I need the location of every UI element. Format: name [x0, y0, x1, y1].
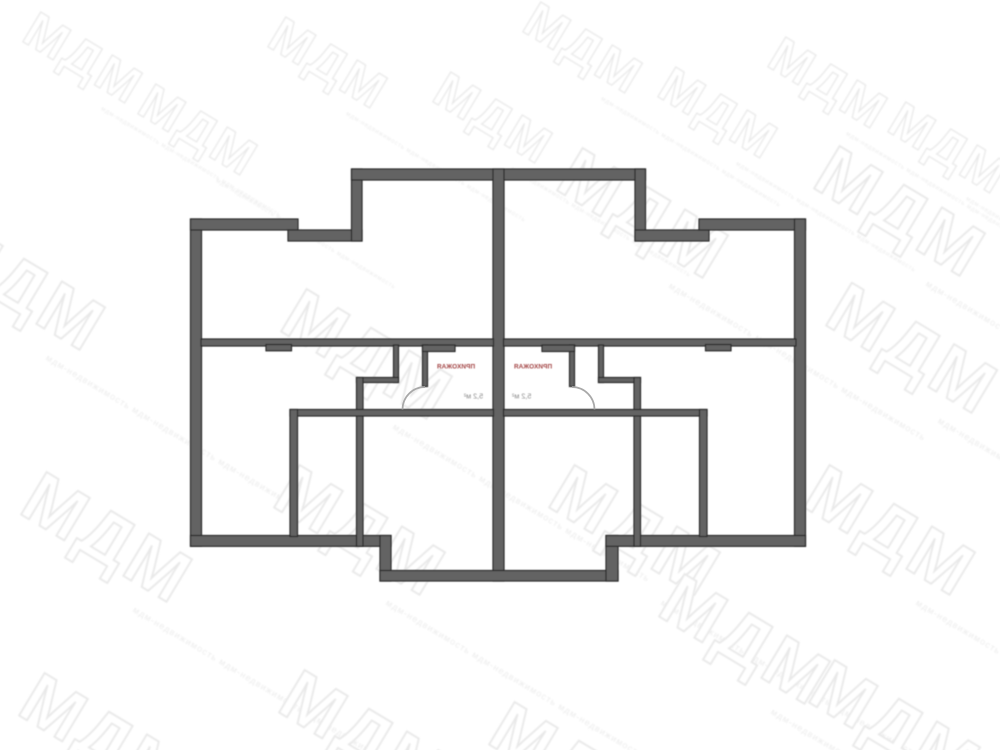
- svg-text:ПРИХОЖАЯ: ПРИХОЖАЯ: [437, 364, 476, 371]
- svg-text:5,2 м²: 5,2 м²: [463, 392, 483, 401]
- svg-text:ПРИХОЖАЯ: ПРИХОЖАЯ: [514, 364, 553, 371]
- svg-text:5,2 м²: 5,2 м²: [511, 392, 531, 401]
